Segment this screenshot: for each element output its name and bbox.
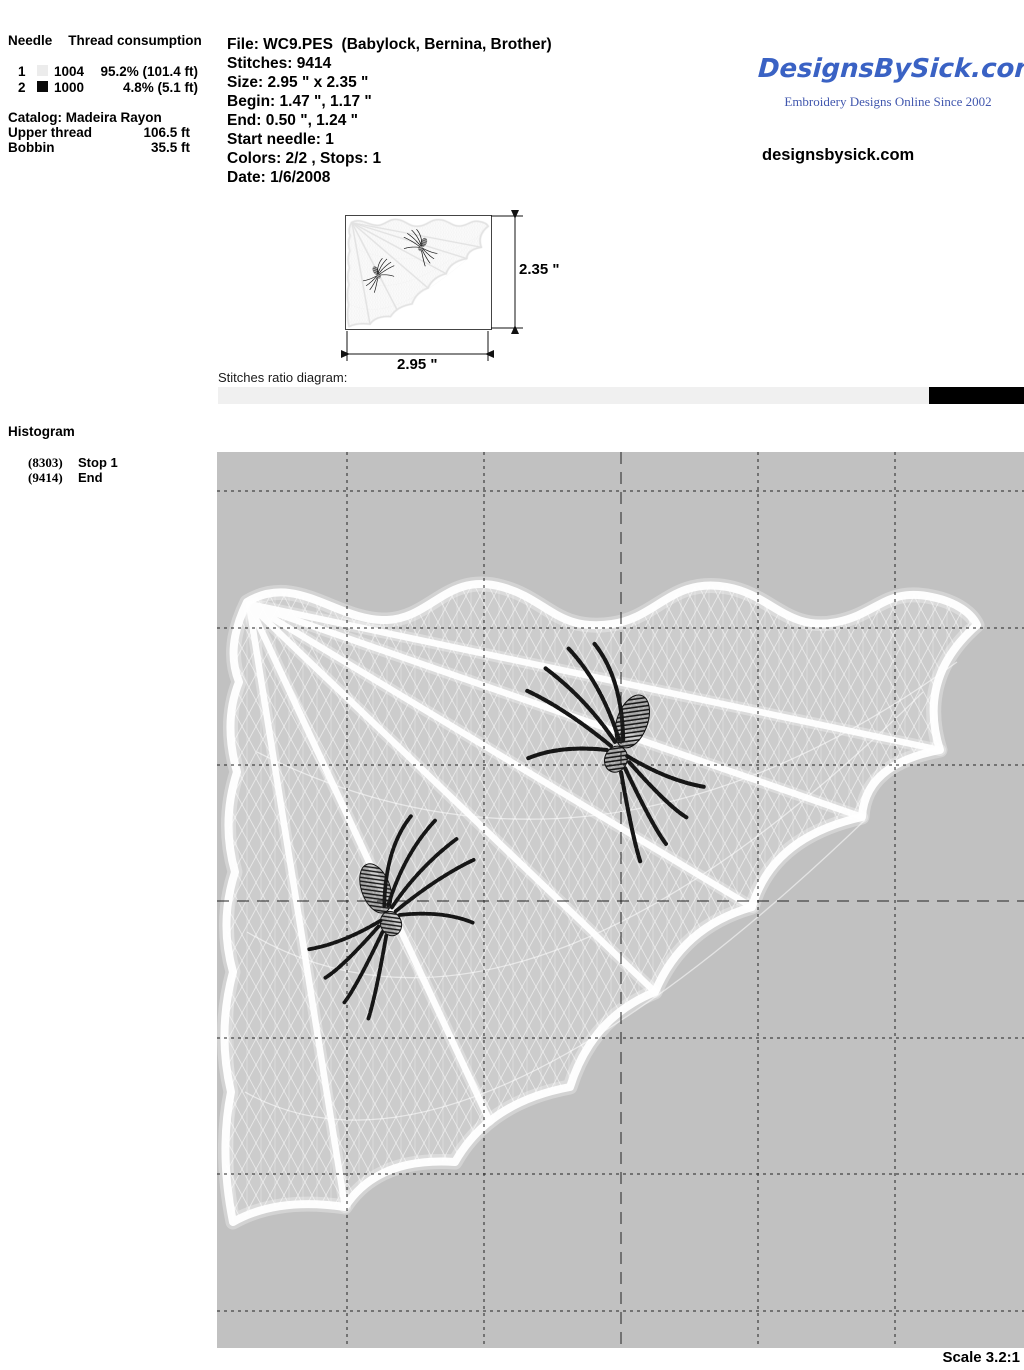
- scale-label: Scale 3.2:1: [860, 1349, 1020, 1366]
- design-preview-canvas: [217, 452, 1024, 1348]
- designsbysick-logo: DesignsBySick.com: [757, 54, 1019, 84]
- histogram-entry-label: End: [78, 470, 103, 485]
- histogram-entry-label: Stop 1: [78, 455, 118, 470]
- colors-stops-line: Colors: 2/2 , Stops: 1: [227, 150, 381, 168]
- start-needle-line: Start needle: 1: [227, 131, 334, 149]
- thread-color-swatch: [37, 65, 48, 76]
- needle-row-2: 2 1000 4.8% (5.1 ft): [8, 80, 198, 94]
- thread-color-swatch: [37, 81, 48, 92]
- thread-consumption-value: 4.8% (5.1 ft): [123, 80, 198, 95]
- histogram-stitch-count: (8303): [28, 455, 78, 471]
- logo-tagline: Embroidery Designs Online Since 2002: [758, 94, 1018, 110]
- embroidery-design: [217, 452, 1024, 1348]
- file-name-line: File: WC9.PES (Babylock, Bernina, Brothe…: [227, 36, 552, 54]
- consumption-column-header: Thread consumption: [68, 33, 202, 48]
- needle-number: 1: [18, 64, 26, 79]
- date-line: Date: 1/6/2008: [227, 169, 330, 187]
- height-dimension-label: 2.35 ": [519, 261, 559, 278]
- begin-line: Begin: 1.47 ", 1.17 ": [227, 93, 372, 111]
- bobbin-label: Bobbin: [8, 140, 55, 155]
- bobbin-line: Bobbin 35.5 ft: [8, 140, 190, 155]
- needle-number: 2: [18, 80, 26, 95]
- size-line: Size: 2.95 " x 2.35 ": [227, 74, 368, 92]
- needle-row-1: 1 1004 95.2% (101.4 ft): [8, 64, 198, 78]
- bobbin-value: 35.5 ft: [151, 140, 190, 155]
- thread-code: 1000: [54, 80, 84, 95]
- width-dimension-label: 2.95 ": [397, 356, 437, 373]
- upper-thread-label: Upper thread: [8, 125, 92, 140]
- thread-code: 1004: [54, 64, 84, 79]
- stitch-count-line: Stitches: 9414: [227, 55, 331, 73]
- histogram-stitch-count: (9414): [28, 470, 78, 486]
- catalog-line: Catalog: Madeira Rayon: [8, 110, 162, 125]
- upper-thread-line: Upper thread 106.5 ft: [8, 125, 190, 140]
- needle-table-header: Needle Thread consumption: [8, 33, 202, 48]
- dimension-arrows: [330, 205, 600, 380]
- thread-consumption-value: 95.2% (101.4 ft): [100, 64, 198, 79]
- stitches-ratio-bar: [218, 387, 1024, 404]
- website-text: designsbysick.com: [762, 146, 914, 165]
- spiderweb-design: [217, 552, 1024, 1348]
- end-line: End: 0.50 ", 1.24 ": [227, 112, 358, 130]
- histogram-entry: (8303)Stop 1: [28, 455, 118, 470]
- ratio-segment-color1: [218, 387, 929, 404]
- histogram-title: Histogram: [8, 424, 75, 439]
- upper-thread-value: 106.5 ft: [143, 125, 190, 140]
- needle-column-header: Needle: [8, 33, 52, 48]
- ratio-segment-color2: [929, 387, 1024, 404]
- ratio-diagram-label: Stitches ratio diagram:: [218, 370, 347, 385]
- histogram-entry: (9414)End: [28, 470, 103, 485]
